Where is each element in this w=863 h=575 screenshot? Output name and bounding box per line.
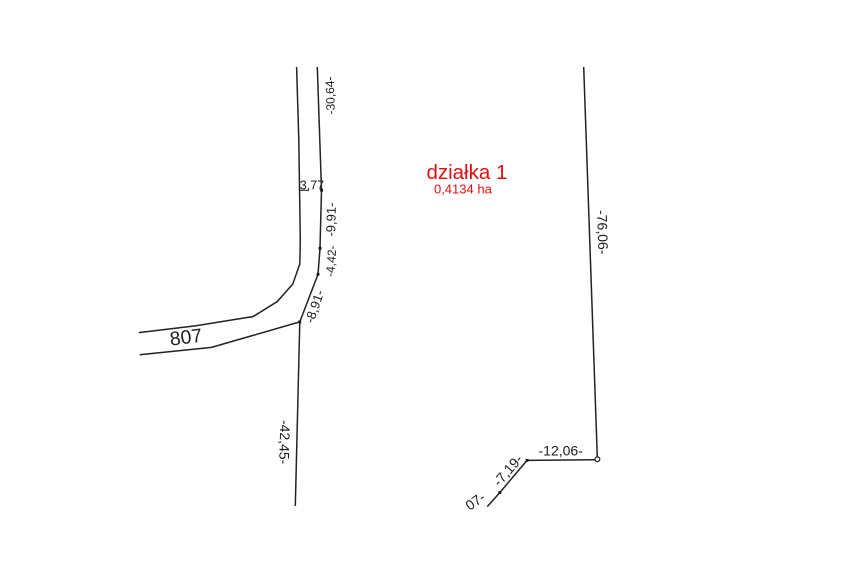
svg-text:-4,42-: -4,42- [323, 245, 339, 277]
svg-text:0,4134 ha: 0,4134 ha [434, 181, 493, 196]
svg-text:-76,06-: -76,06- [594, 210, 612, 255]
svg-text:807: 807 [169, 325, 204, 351]
svg-text:-9,91-: -9,91- [323, 202, 339, 236]
svg-text:-30,64-: -30,64- [323, 76, 338, 114]
svg-text:-42,45-: -42,45- [276, 420, 293, 465]
svg-text:3,77: 3,77 [300, 178, 324, 192]
svg-text:-12,06-: -12,06- [539, 442, 584, 458]
